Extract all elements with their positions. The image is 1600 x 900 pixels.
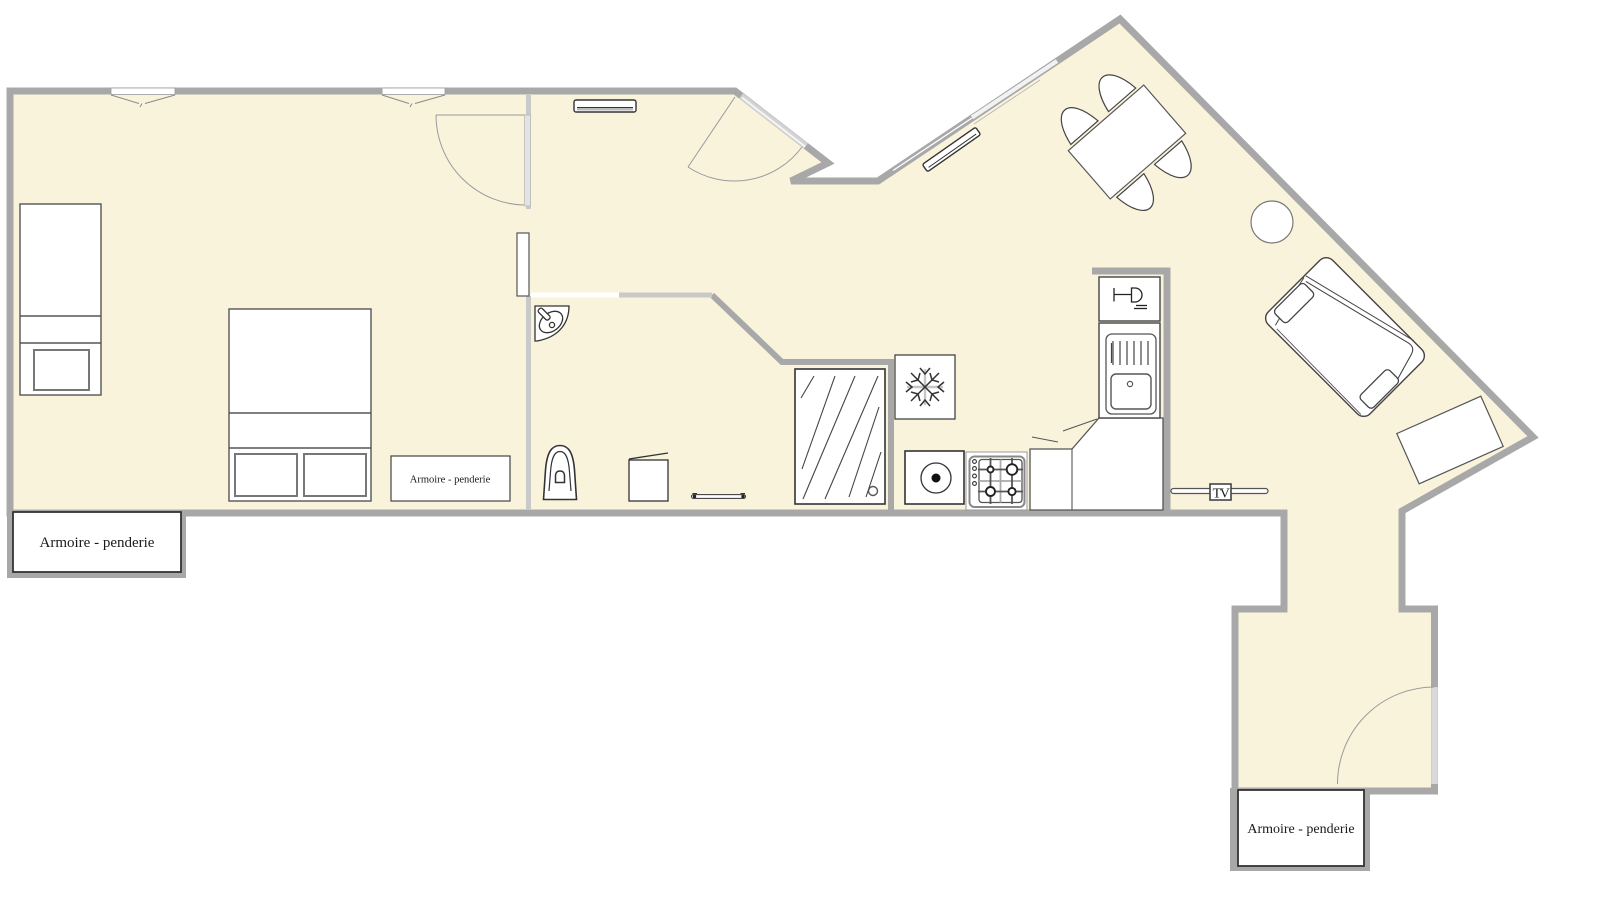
svg-text:TV: TV xyxy=(1213,487,1230,502)
svg-text:Armoire - penderie: Armoire - penderie xyxy=(410,475,491,486)
svg-text:Armoire - penderie: Armoire - penderie xyxy=(40,535,155,551)
svg-text:Armoire - penderie: Armoire - penderie xyxy=(1247,822,1354,837)
